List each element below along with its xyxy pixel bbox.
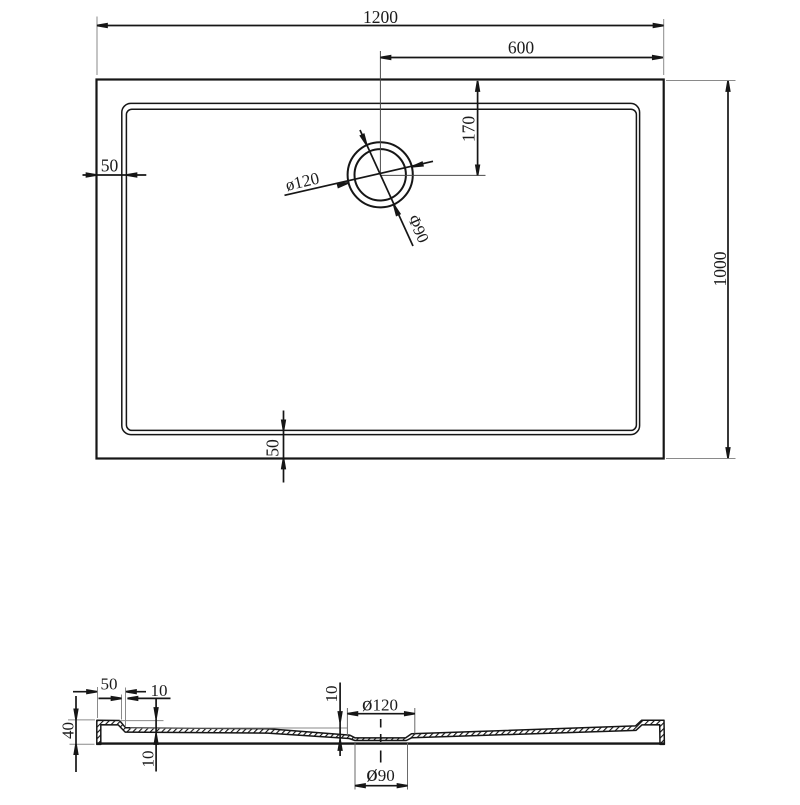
svg-text:600: 600 [508, 38, 535, 58]
svg-text:1000: 1000 [710, 251, 730, 286]
svg-text:50: 50 [101, 156, 119, 176]
svg-text:10: 10 [322, 686, 341, 703]
svg-text:10: 10 [151, 681, 168, 700]
svg-text:40: 40 [59, 722, 78, 739]
svg-text:10: 10 [139, 751, 158, 768]
svg-text:ø120: ø120 [362, 692, 398, 716]
svg-text:50: 50 [101, 675, 118, 694]
svg-text:50: 50 [263, 439, 283, 457]
svg-text:1200: 1200 [363, 7, 398, 27]
svg-text:170: 170 [459, 116, 479, 143]
